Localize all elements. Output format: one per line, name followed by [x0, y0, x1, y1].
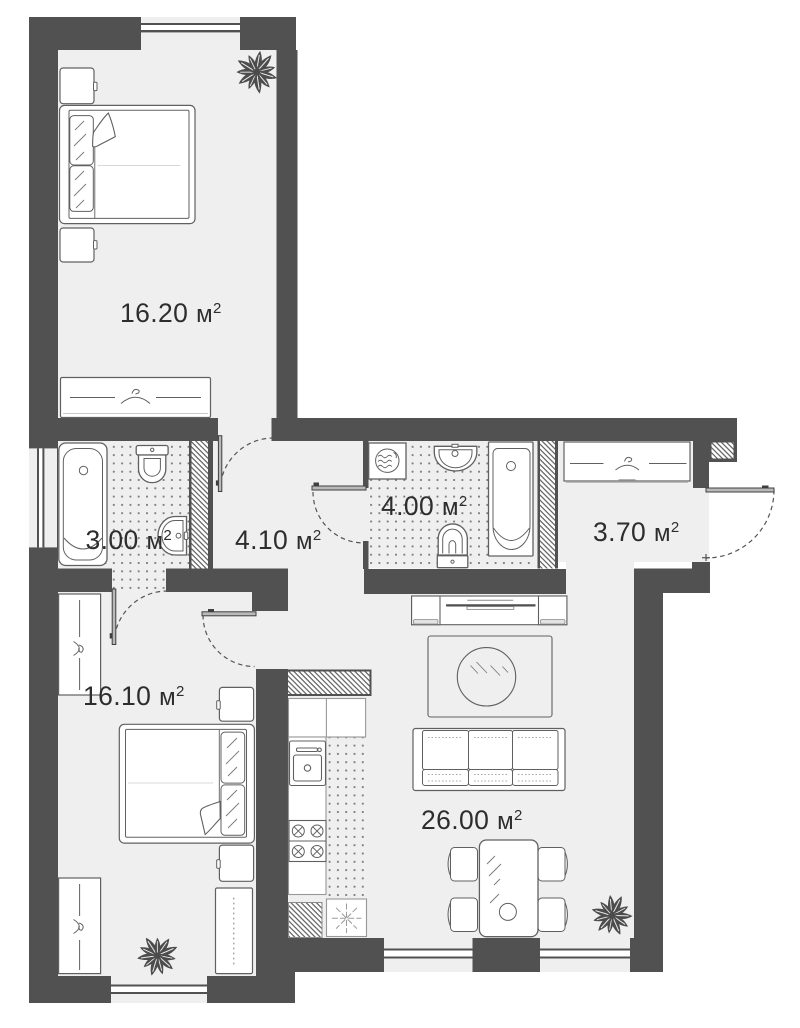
svg-text:4.10 м2: 4.10 м2 — [235, 525, 322, 555]
svg-text:16.10 м2: 16.10 м2 — [83, 681, 185, 711]
svg-text:26.00 м2: 26.00 м2 — [421, 805, 523, 835]
svg-text:4.00 м2: 4.00 м2 — [381, 491, 468, 521]
svg-text:3.00 м2: 3.00 м2 — [86, 525, 173, 555]
svg-text:16.20 м2: 16.20 м2 — [120, 298, 222, 328]
svg-text:3.70 м2: 3.70 м2 — [593, 517, 680, 547]
